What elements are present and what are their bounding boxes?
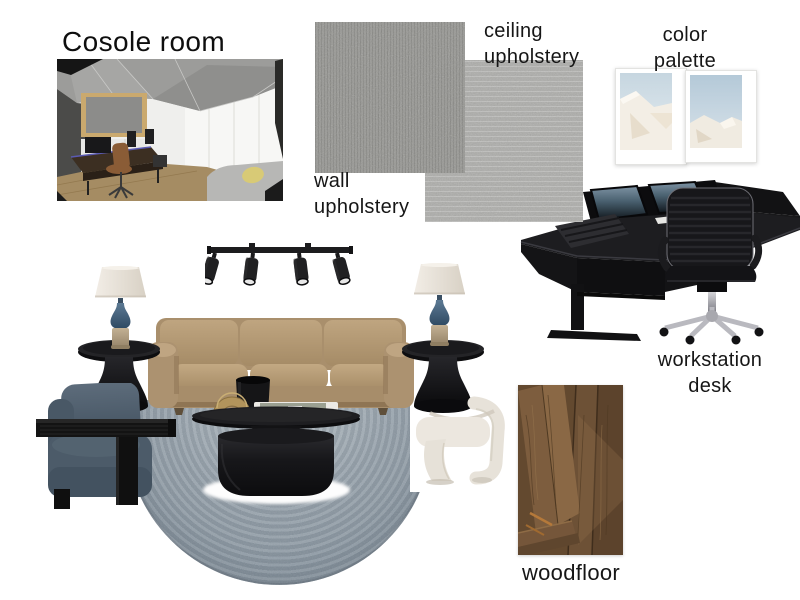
palette-print-left bbox=[615, 68, 687, 165]
spot-lamp bbox=[205, 251, 221, 285]
wall-upholstery-swatch bbox=[315, 22, 465, 173]
track-light bbox=[205, 241, 355, 289]
workstation-desk-label: workstation desk bbox=[645, 347, 775, 400]
wall-upholstery-label: wall upholstery bbox=[314, 168, 434, 221]
coffee-table bbox=[192, 374, 362, 498]
armchair-blue bbox=[36, 383, 182, 513]
wood-floor-sample bbox=[518, 385, 623, 555]
spot-lamp bbox=[331, 251, 352, 285]
table-lamp-left bbox=[92, 266, 149, 350]
table-lamp-right bbox=[411, 263, 468, 347]
spot-lamp bbox=[293, 252, 310, 285]
woodfloor-label: woodfloor bbox=[515, 558, 627, 587]
desk-screen-left bbox=[591, 186, 647, 220]
room-render-image bbox=[57, 59, 283, 201]
ceiling-upholstery-label: ceiling upholstery bbox=[484, 18, 604, 71]
board-title: Cosole room bbox=[62, 26, 225, 58]
office-chair bbox=[660, 188, 764, 345]
color-palette-label: color palette bbox=[630, 22, 740, 75]
accent-chair-cream bbox=[410, 381, 508, 487]
spot-lamp bbox=[243, 252, 260, 285]
palette-print-right bbox=[685, 70, 757, 163]
moodboard-canvas: Cosole room bbox=[0, 0, 800, 600]
